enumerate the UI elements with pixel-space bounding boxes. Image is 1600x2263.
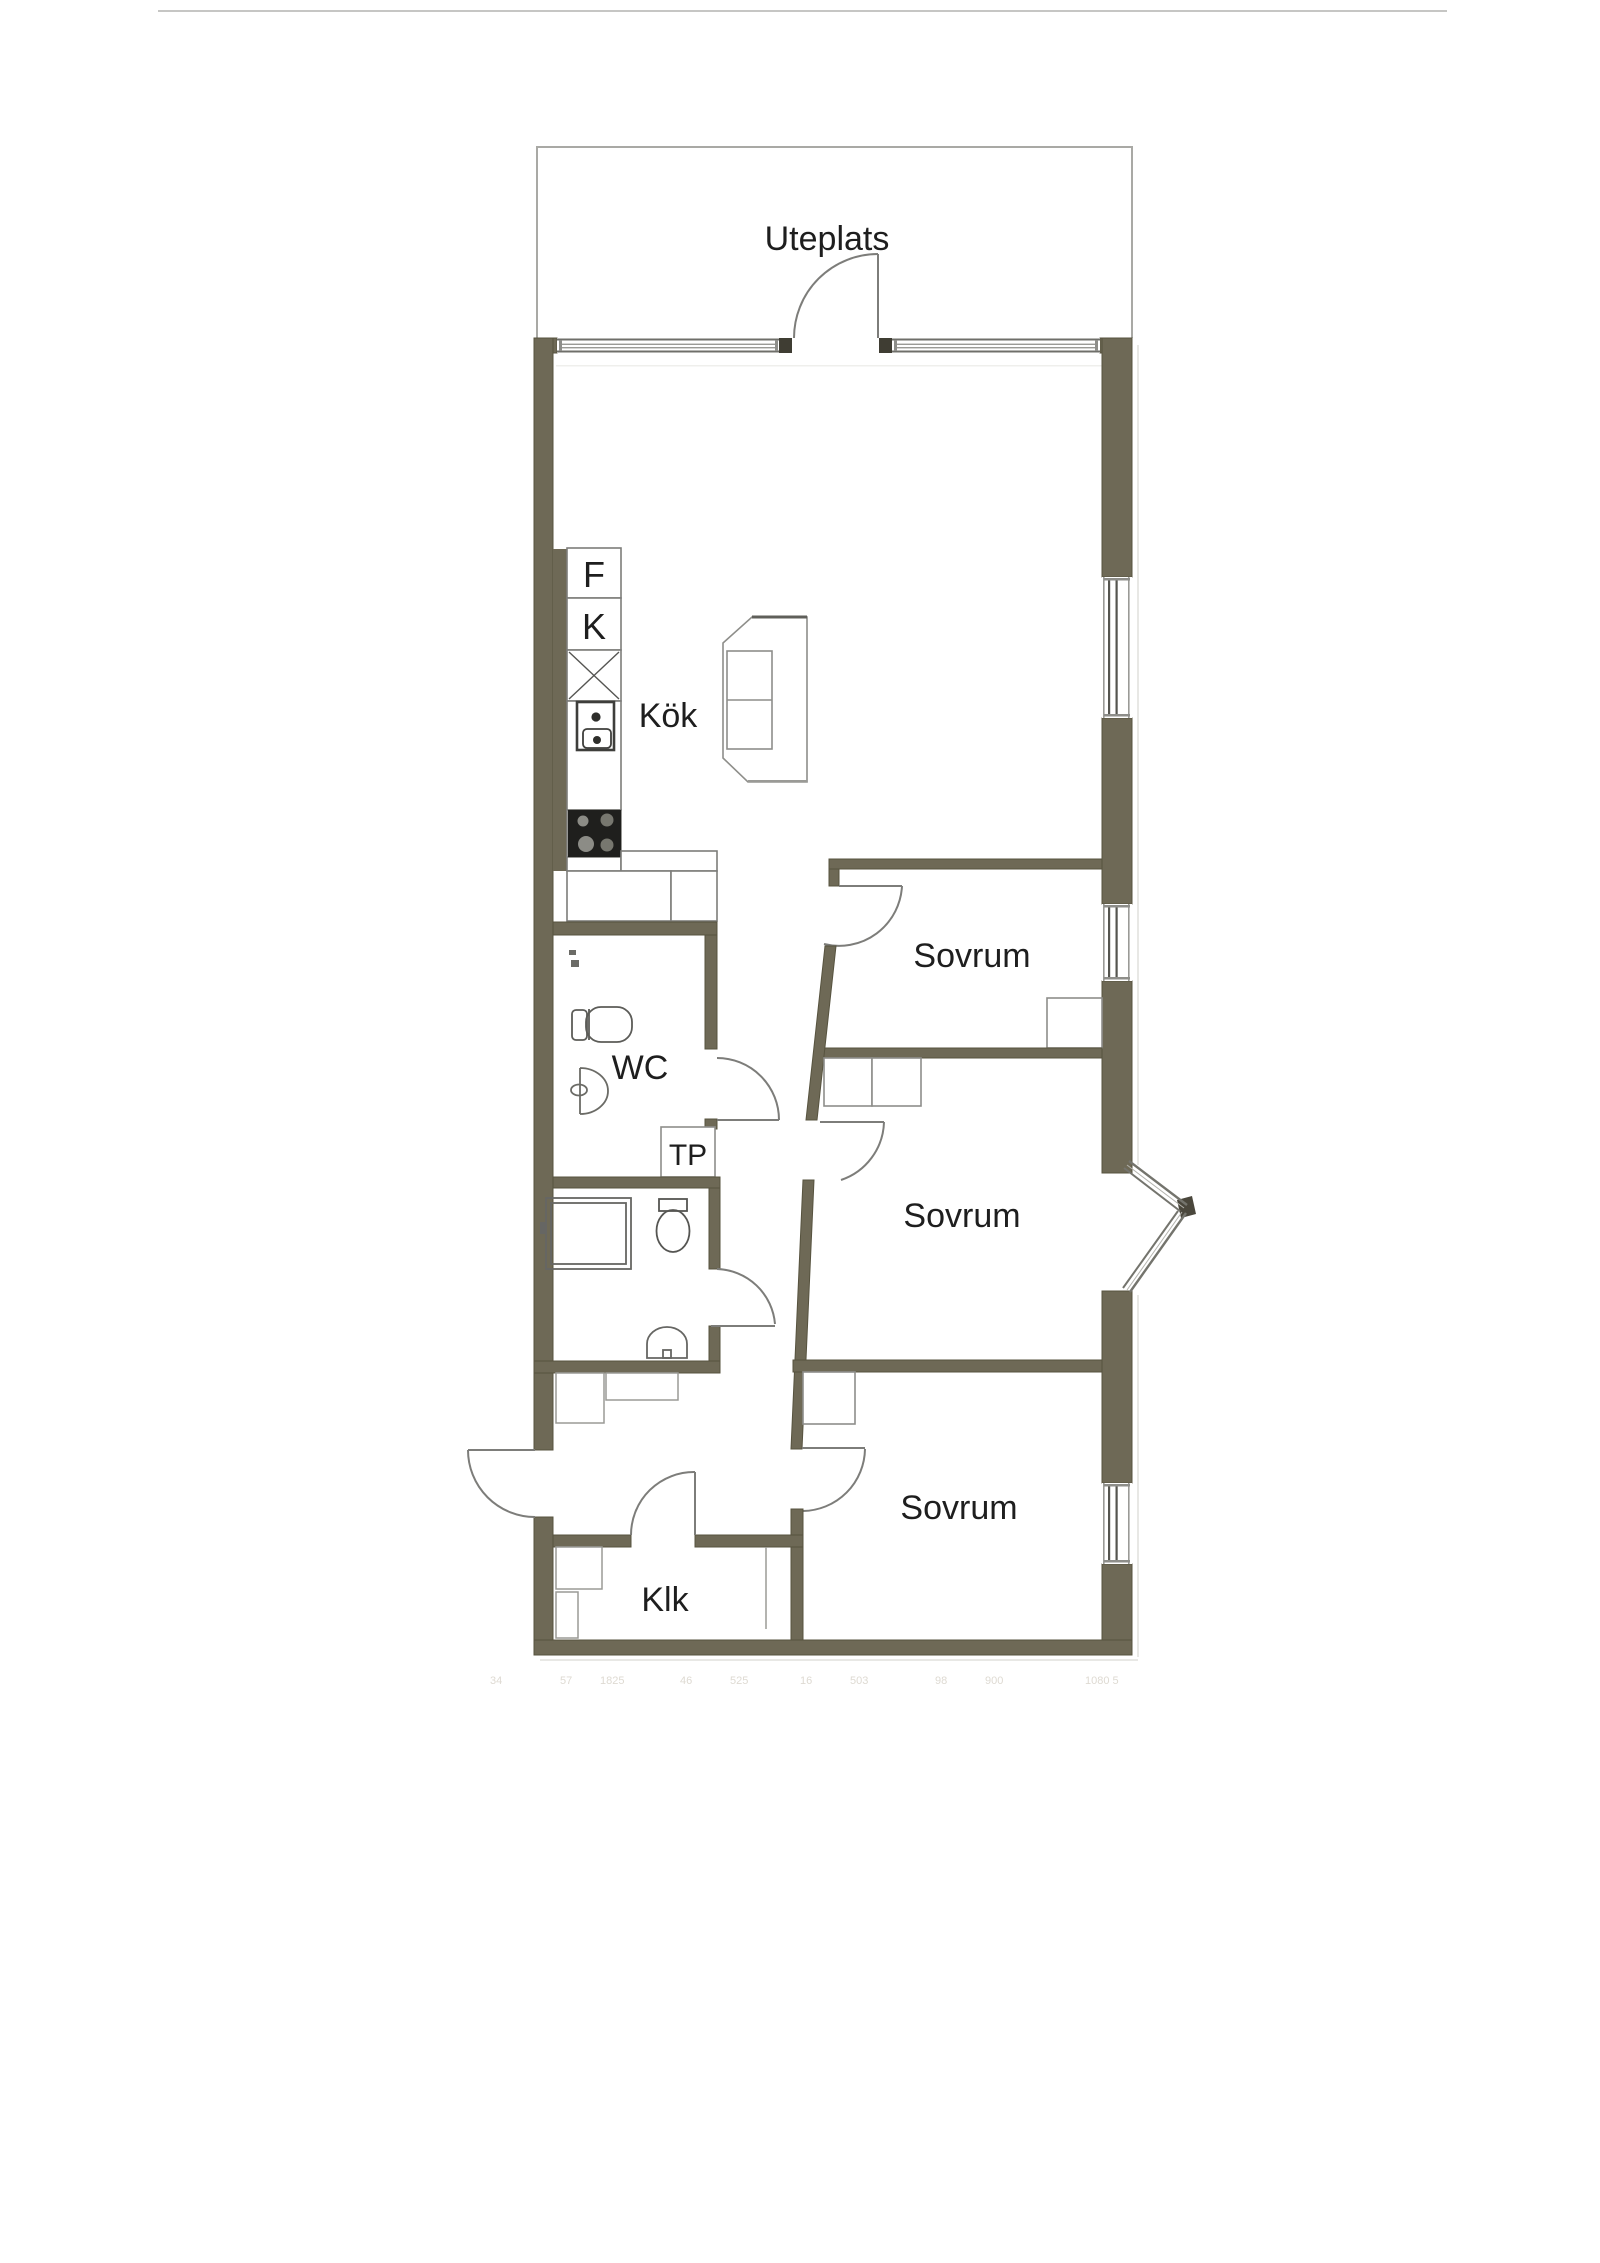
- svg-text:K: K: [582, 606, 606, 647]
- svg-text:Klk: Klk: [641, 1581, 689, 1619]
- svg-text:98: 98: [935, 1675, 947, 1687]
- svg-text:34: 34: [490, 1675, 502, 1687]
- svg-text:1825: 1825: [600, 1675, 624, 1687]
- svg-text:WC: WC: [612, 1049, 669, 1087]
- svg-text:Sovrum: Sovrum: [903, 1197, 1020, 1235]
- svg-text:TP: TP: [669, 1139, 707, 1172]
- svg-text:Kök: Kök: [639, 697, 699, 735]
- svg-text:Sovrum: Sovrum: [900, 1489, 1017, 1527]
- svg-text:1080 5: 1080 5: [1085, 1675, 1119, 1687]
- svg-text:503: 503: [850, 1675, 868, 1687]
- svg-text:16: 16: [800, 1675, 812, 1687]
- svg-text:525: 525: [730, 1675, 748, 1687]
- svg-text:Sovrum: Sovrum: [913, 937, 1030, 975]
- svg-text:57: 57: [560, 1675, 572, 1687]
- svg-text:F: F: [583, 554, 605, 595]
- svg-text:Uteplats: Uteplats: [765, 220, 890, 258]
- svg-text:900: 900: [985, 1675, 1003, 1687]
- svg-text:46: 46: [680, 1675, 692, 1687]
